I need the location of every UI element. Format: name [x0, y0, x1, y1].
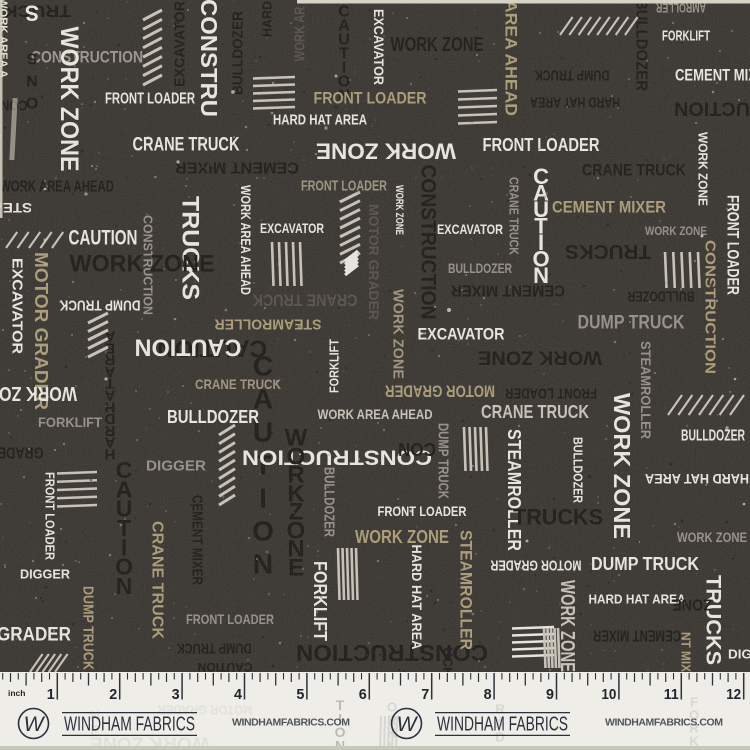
- svg-text:WINDHAM FABRICS: WINDHAM FABRICS: [64, 714, 195, 736]
- svg-text:8: 8: [484, 687, 492, 703]
- svg-text:5: 5: [296, 687, 304, 703]
- svg-text:inch: inch: [8, 688, 25, 698]
- svg-text:12: 12: [726, 687, 741, 703]
- svg-text:7: 7: [421, 687, 429, 703]
- svg-text:W: W: [397, 713, 419, 736]
- svg-text:6: 6: [359, 687, 367, 703]
- svg-text:9: 9: [546, 687, 554, 703]
- svg-text:10: 10: [601, 687, 616, 703]
- svg-text:3: 3: [172, 687, 180, 703]
- svg-text:W: W: [24, 713, 46, 736]
- svg-text:11: 11: [664, 687, 679, 703]
- svg-text:1: 1: [47, 687, 55, 703]
- svg-text:WINDHAM FABRICS: WINDHAM FABRICS: [437, 714, 568, 736]
- svg-text:WINDHAMFABRICS.COM: WINDHAMFABRICS.COM: [232, 717, 350, 729]
- svg-text:WINDHAMFABRICS.COM: WINDHAMFABRICS.COM: [605, 717, 723, 729]
- svg-text:4: 4: [234, 687, 242, 703]
- svg-text:2: 2: [109, 687, 117, 703]
